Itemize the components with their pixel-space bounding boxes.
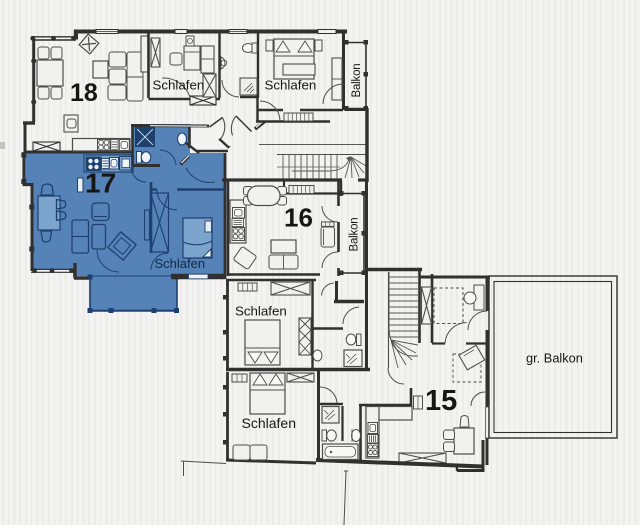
svg-text:Balkon: Balkon [349, 218, 361, 252]
svg-text:17: 17 [85, 168, 116, 199]
svg-text:16: 16 [284, 203, 313, 233]
svg-text:Schlafen: Schlafen [265, 78, 317, 93]
svg-text:Schlafen: Schlafen [235, 304, 287, 319]
svg-text:Schlafen: Schlafen [242, 415, 296, 431]
svg-text:Schlafen: Schlafen [155, 256, 206, 271]
svg-text:15: 15 [425, 385, 457, 417]
svg-text:Schlafen: Schlafen [153, 78, 205, 93]
svg-text:18: 18 [70, 79, 98, 107]
svg-text:gr. Balkon: gr. Balkon [526, 350, 583, 365]
svg-text:Balkon: Balkon [351, 64, 363, 98]
